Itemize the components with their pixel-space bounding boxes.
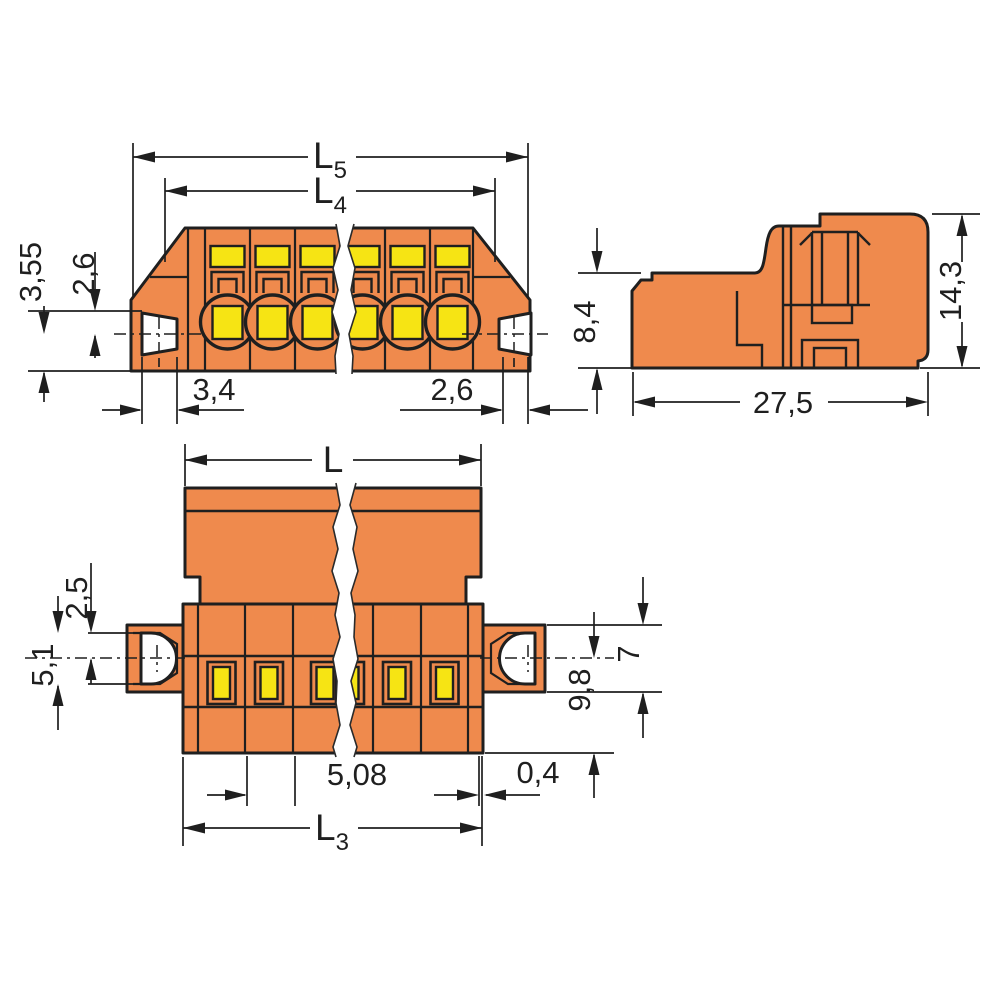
bottom-view: L 2,5 5,1 7 9,8 5,08 0,4 L3 (25, 439, 662, 856)
side-view: 8,4 14,3 27,5 (567, 214, 980, 420)
dim-label-0-4: 0,4 (516, 755, 559, 790)
dim-label-9-8: 9,8 (562, 668, 597, 711)
technical-drawing-page: L5 L4 3,55 2,6 3,4 2,6 (0, 0, 1000, 1000)
dim-label-2-6-right: 2,6 (430, 372, 473, 407)
dim-label-8-4: 8,4 (567, 300, 602, 343)
connector-dimension-drawing: L5 L4 3,55 2,6 3,4 2,6 (0, 0, 1000, 1000)
dim-label-27-5: 27,5 (753, 385, 813, 420)
dim-label-3-55: 3,55 (13, 242, 48, 302)
dim-label-5-08: 5,08 (327, 757, 387, 792)
front-view: L5 L4 3,55 2,6 3,4 2,6 (13, 135, 588, 424)
dim-label-5-1: 5,1 (25, 643, 60, 686)
dim-label-3-4: 3,4 (192, 372, 235, 407)
dim-label-7: 7 (611, 645, 646, 662)
dim-label-L: L (323, 439, 344, 480)
dim-label-14-3: 14,3 (933, 261, 968, 321)
dim-label-L3: L3 (315, 807, 349, 856)
